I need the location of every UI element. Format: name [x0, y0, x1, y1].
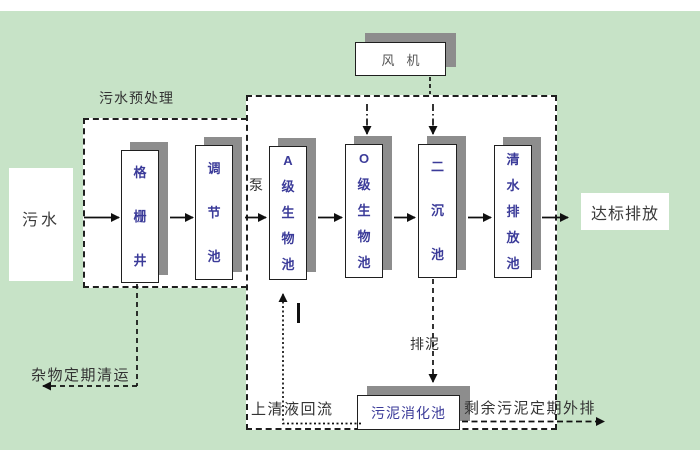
node-clear-water-discharge-tank: 清水排放池: [494, 145, 532, 278]
node-o-bio-tank-label: O级生物池: [356, 146, 372, 276]
label-excess-sludge-out: 剩余污泥定期外排: [464, 397, 596, 418]
node-fan-label: 风机: [369, 50, 431, 69]
node-a-bio-tank: A级生物池: [269, 146, 307, 280]
node-regulating-tank-label: 调节池: [206, 147, 222, 279]
node-grid-well: 格栅井: [121, 150, 159, 283]
node-clear-water-discharge-label: 清水排放池: [505, 147, 521, 277]
node-standard-discharge-label: 达标排放: [591, 200, 659, 224]
node-sewage: 污水: [9, 168, 73, 281]
top-white-strip: [0, 0, 700, 11]
label-debris-removal: 杂物定期清运: [31, 364, 130, 385]
node-sludge-digestion-label: 污泥消化池: [371, 403, 446, 423]
node-a-bio-tank-label: A级生物池: [280, 148, 296, 278]
label-sludge-discharge: 排泥: [410, 334, 440, 354]
node-standard-discharge: 达标排放: [581, 193, 669, 230]
node-grid-well-label: 格栅井: [132, 151, 148, 283]
node-sewage-label: 污水: [22, 206, 60, 230]
node-sludge-digestion-tank: 污泥消化池: [357, 395, 460, 430]
label-supernatant-return: 上清液回流: [251, 398, 334, 419]
node-secondary-sedimentation-tank: 二沉池: [418, 144, 457, 278]
label-pretreatment: 污水预处理: [99, 88, 174, 108]
node-o-bio-tank: O级生物池: [345, 144, 383, 278]
node-secondary-sedimentation-label: 二沉池: [430, 145, 446, 277]
node-fan: 风机: [355, 42, 446, 76]
process-flow-diagram: 污水 达标排放 风机 污泥消化池 格栅井 调节池 A级生物池 O级生物池 二沉池…: [0, 0, 700, 450]
node-regulating-tank: 调节池: [195, 145, 233, 280]
label-pump: 泵: [249, 175, 263, 195]
